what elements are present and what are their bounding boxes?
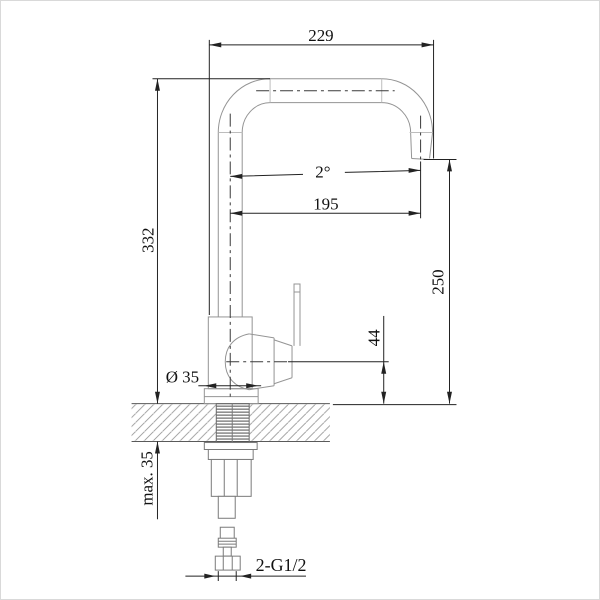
g12-hex-nut (215, 556, 240, 570)
faucet-technical-drawing: 229 332 2° 195 250 44 (1, 1, 599, 599)
drawing-canvas: 229 332 2° 195 250 44 (0, 0, 600, 600)
faucet-outline (204, 79, 432, 404)
arrow-right (240, 574, 251, 579)
dimension-base-diameter: Ø 35 (166, 368, 261, 388)
dim-label-overall-height: 332 (138, 227, 157, 252)
arrow-right (409, 211, 421, 216)
arrow-right (409, 168, 421, 173)
dimension-outlet-height: 250 (333, 159, 457, 404)
washer (204, 443, 257, 450)
dimension-handle-height: 44 (288, 316, 389, 404)
dim-label-outlet-height: 250 (429, 269, 448, 294)
arrow-bottom (155, 392, 160, 404)
arrow-bottom (447, 392, 452, 404)
dim-label-overall-width: 229 (308, 26, 333, 45)
lock-nut (211, 459, 251, 496)
hose-upper-segment (218, 496, 235, 518)
arrow-bottom (381, 392, 386, 404)
arrow-left (230, 174, 242, 179)
thread-callout: 2-G1/2 (185, 555, 306, 581)
spacer-collar (208, 450, 253, 460)
deck-hatch-right (249, 404, 330, 442)
dimension-spout-angle: 2° (230, 162, 420, 181)
hose-neck (223, 547, 231, 556)
arrow-top (155, 79, 160, 91)
arrow-top (381, 362, 386, 374)
thread-spec-label: 2-G1/2 (256, 555, 307, 575)
dim-label-spout-reach: 195 (313, 194, 338, 213)
arrow-left (209, 42, 221, 47)
dimension-overall-height: 332 (138, 79, 270, 404)
arrow-top (447, 159, 452, 171)
arrow-left (230, 211, 242, 216)
hose-ridge-collar (218, 538, 236, 547)
handle-lever (294, 284, 300, 346)
dimension-deck-thickness: max. 35 (137, 442, 159, 520)
arrow-left (204, 574, 215, 579)
dim-label-base-diameter: Ø 35 (166, 368, 199, 387)
centerlines (226, 91, 420, 401)
hose-lower-segment (220, 527, 234, 539)
deck-hatch-left (132, 404, 217, 442)
tube-junction-lines (218, 79, 432, 133)
dim-label-handle-height: 44 (365, 329, 384, 346)
dim-label-deck-thickness: max. 35 (137, 451, 156, 506)
arrow-left (204, 383, 216, 388)
arrow-right (422, 42, 434, 47)
dim-label-spout-angle: 2° (315, 162, 330, 181)
